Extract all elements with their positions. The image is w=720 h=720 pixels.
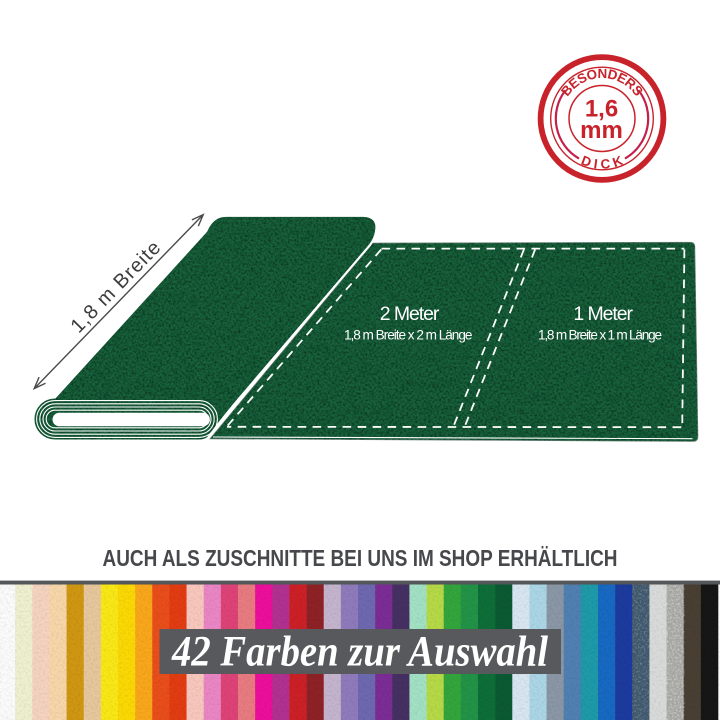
svg-text:mm: mm — [580, 117, 623, 144]
svg-text:1,8 m Breite x 1 m Länge: 1,8 m Breite x 1 m Länge — [538, 327, 662, 342]
svg-text:2 Meter: 2 Meter — [380, 303, 440, 325]
svg-text:C: C — [600, 156, 611, 172]
svg-text:1,8 m Breite x 2 m Länge: 1,8 m Breite x 2 m Länge — [344, 327, 473, 342]
svg-text:1 Meter: 1 Meter — [573, 303, 633, 325]
svg-text:42 Farben zur Auswahl: 42 Farben zur Auswahl — [171, 629, 548, 676]
svg-text:AUCH ALS ZUSCHNITTE BEI UNS IM: AUCH ALS ZUSCHNITTE BEI UNS IM SHOP ERHÄ… — [103, 545, 618, 571]
